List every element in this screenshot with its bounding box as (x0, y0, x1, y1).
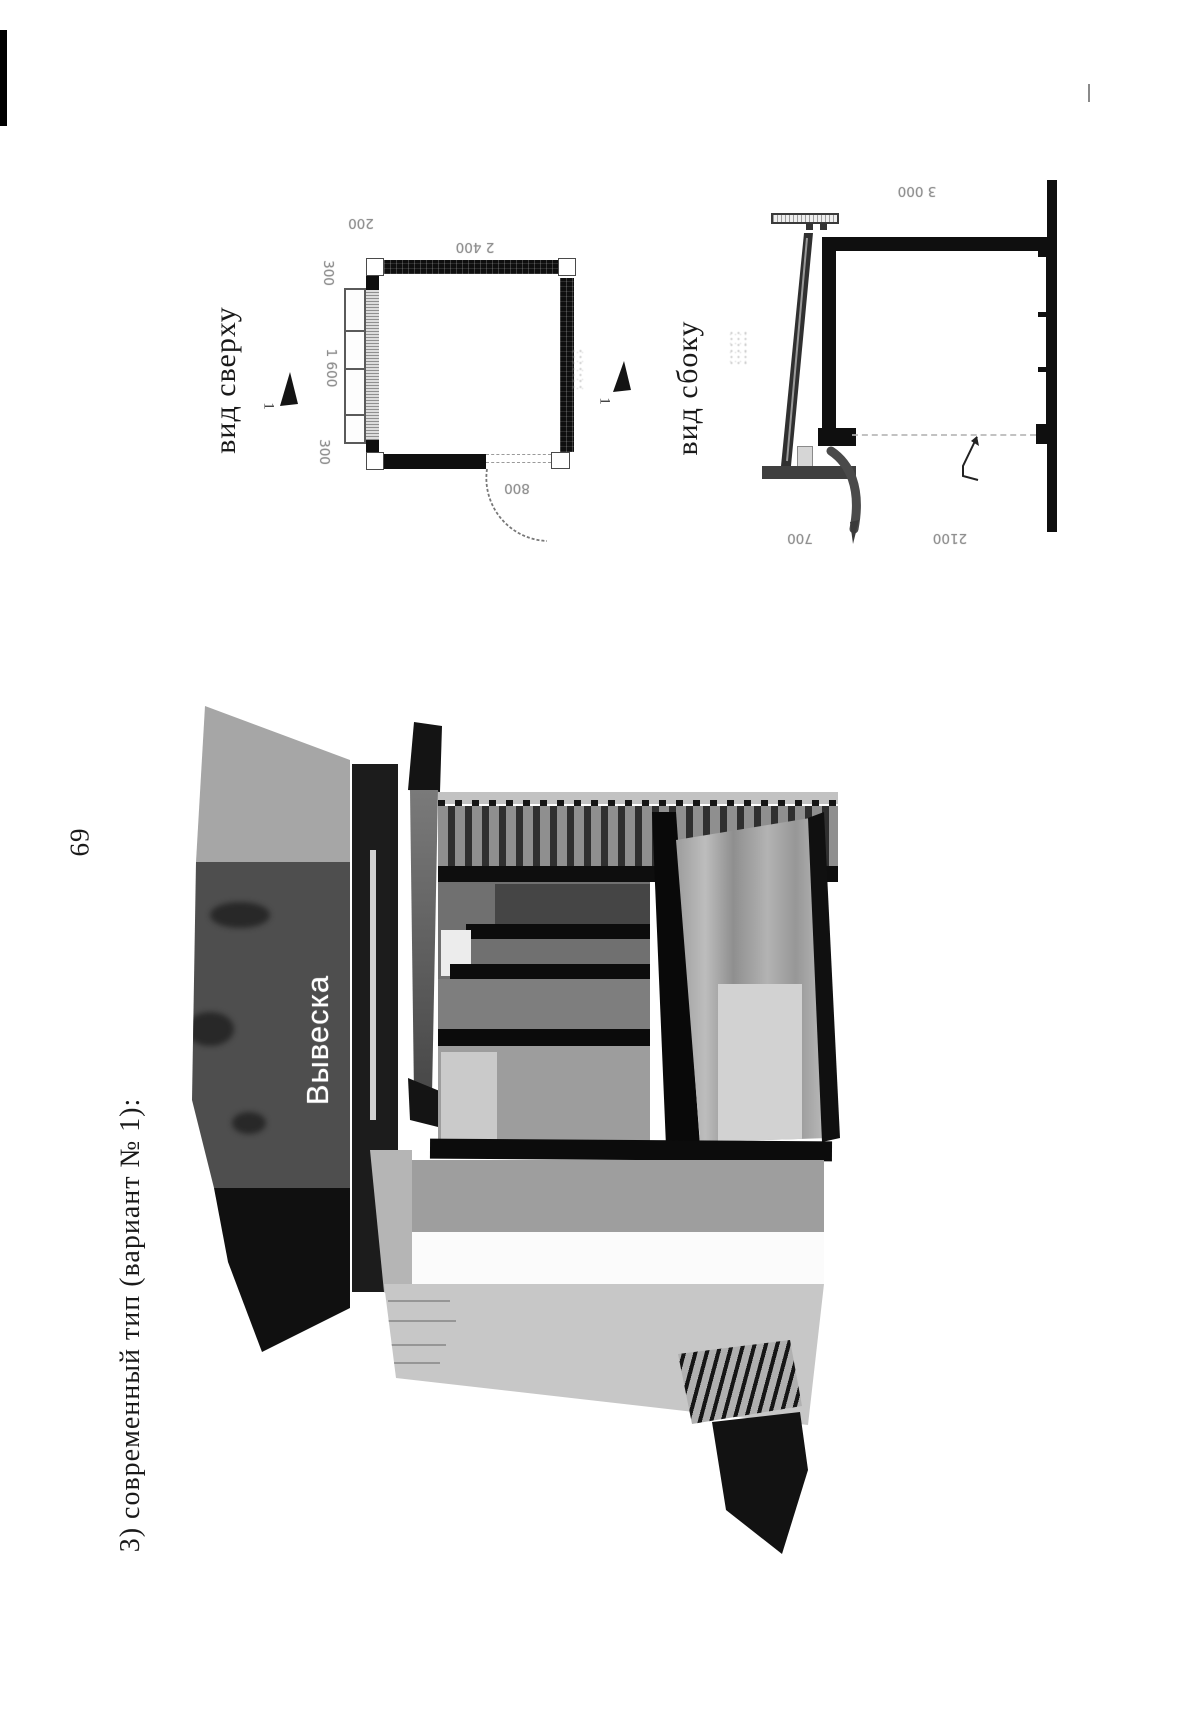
shelf-band (466, 924, 650, 939)
kiosk-sign-text: Вывеска (300, 975, 336, 1105)
base-streak (386, 1320, 456, 1322)
corner-post-cap (408, 722, 442, 792)
base-upper-strip (412, 1160, 824, 1232)
figure-caption: 3) современный тип (вариант № 1): (115, 1098, 147, 1553)
base-white-band (412, 1232, 824, 1284)
base-streak (390, 1344, 446, 1346)
scanned-document-page: вид сверху 200 2 400 300 1 600 300 800 1 (0, 0, 1200, 1719)
shelf-band (450, 964, 650, 979)
edge-highlight (370, 850, 376, 1120)
shelf-band (438, 1029, 650, 1046)
support-bracket (831, 451, 856, 529)
sign-post-highlight (787, 238, 807, 461)
scan-blotch (232, 1112, 266, 1134)
glass-bay-right (674, 816, 830, 1142)
interior-midzone (438, 979, 650, 1029)
base-streak (388, 1300, 450, 1302)
scan-blotch (210, 902, 270, 928)
section-arrow-icon (613, 361, 631, 392)
counter-front (441, 1052, 497, 1144)
glass-bay-left (438, 882, 650, 1144)
base-streak (392, 1362, 440, 1364)
glass-reflection (718, 984, 802, 1142)
door-swing-arc (486, 469, 547, 541)
glass-bottom-frame (430, 1139, 832, 1162)
section-arrow-icon (280, 372, 298, 406)
page-number: 69 (65, 828, 96, 857)
